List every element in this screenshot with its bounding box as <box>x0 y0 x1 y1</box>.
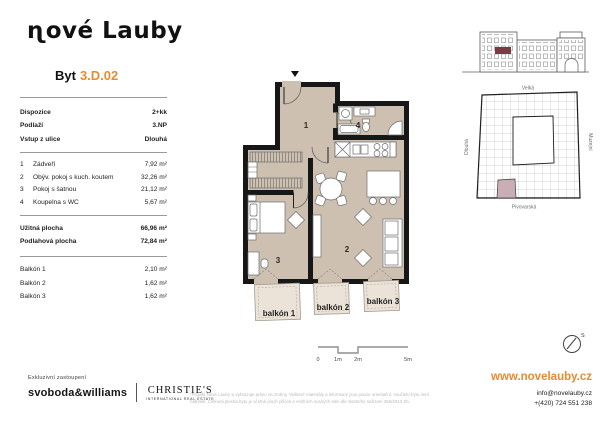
total-row: Podlahová plocha 72,84 m² <box>20 235 167 248</box>
inner-courtyard <box>513 116 554 165</box>
disclaimer-text: *Projekt Nové Lauby si vyhrazuje právo n… <box>190 391 452 406</box>
detail-row-podlazi: Podlaží 3.NP <box>20 119 167 132</box>
site-plan: Velká Pivovarská Dlouhá Muzejní <box>462 85 595 215</box>
detail-label: Dispozice <box>20 106 51 119</box>
compass-north-label: S <box>581 333 585 339</box>
kitchen-island <box>367 171 400 197</box>
room-area: 5,67 m² <box>145 197 167 210</box>
kitchen-counter <box>335 142 396 157</box>
website-link[interactable]: www.novelauby.cz <box>418 371 592 383</box>
bathroom-counter <box>354 107 375 116</box>
disclaimer-line-1: *Projekt Nové Lauby si vyhrazuje právo n… <box>190 391 452 398</box>
detail-value: Dlouhá <box>145 133 167 146</box>
room-name: Obýv. pokoj s kuch. koutem <box>33 172 141 185</box>
balcony-label: Balkón 2 <box>20 277 46 290</box>
phone-number: +(420) 724 551 238 <box>418 399 592 409</box>
desk <box>248 252 259 275</box>
disclaimer-line-2: nábytek. Celková plocha bytu je včetně p… <box>190 398 452 405</box>
detail-label: Podlaží <box>20 119 43 132</box>
room-no: 3 <box>20 184 33 197</box>
scale-bar: 0 1m 2m 5m <box>316 347 412 362</box>
brand-logo: ɳové Lauby <box>27 18 183 44</box>
sofa <box>383 219 402 267</box>
detail-label: Vstup z ulice <box>20 133 60 146</box>
room-row: 3 Pokoj s šatnou 21,12 m² <box>20 184 167 197</box>
wall-cabinet <box>313 215 321 257</box>
total-row: Užitná plocha 66,96 m² <box>20 222 167 235</box>
entry-door-opening <box>282 81 301 89</box>
entrance-arrow-icon <box>291 71 299 77</box>
room-row: 1 Zádveří 7,92 m² <box>20 159 167 172</box>
room-label-2: 2 <box>345 245 350 254</box>
total-label: Podlahová plocha <box>20 235 76 248</box>
washing-machine <box>339 107 352 120</box>
svoboda-williams-logo: svoboda&williams <box>28 387 127 399</box>
contact-block: www.novelauby.cz info@novelauby.cz +(420… <box>418 371 592 409</box>
unit-title: Byt3.D.02 <box>55 68 118 83</box>
arched-entry <box>565 59 578 72</box>
balcony-area: 1,62 m² <box>145 290 167 303</box>
detail-row-dispozice: Dispozice 2+kk <box>20 106 167 119</box>
unit-label: Byt <box>55 68 76 83</box>
room-no: 1 <box>20 159 33 172</box>
room-no: 2 <box>20 172 33 185</box>
room-row: 2 Obýv. pokoj s kuch. koutem 32,26 m² <box>20 172 167 185</box>
room-area: 32,26 m² <box>141 172 167 185</box>
balcony-3 <box>363 280 399 311</box>
logo-divider <box>136 383 137 402</box>
balcony-area: 1,62 m² <box>145 277 167 290</box>
total-value: 66,96 m² <box>141 222 167 235</box>
scale-tick-0: 0 <box>316 357 319 362</box>
room-area: 7,92 m² <box>145 159 167 172</box>
room-label-3: 3 <box>276 256 281 265</box>
total-value: 72,84 m² <box>141 235 167 248</box>
floor-plan-sheet: ɳové Lauby Byt3.D.02 Dispozice 2+kk Podl… <box>0 0 600 422</box>
room-name: Zádveří <box>33 159 145 172</box>
unit-number: 3.D.02 <box>80 68 118 83</box>
divider <box>20 215 167 216</box>
pillow <box>250 219 257 231</box>
detail-value: 3.NP <box>152 119 167 132</box>
floor-plan-drawing: 1 2 3 4 balkón 1 balkón 2 balkón 3 0 1m … <box>224 68 436 362</box>
divider <box>20 97 167 98</box>
balcony-label: Balkón 1 <box>20 263 46 276</box>
info-panel: Dispozice 2+kk Podlaží 3.NP Vstup z ulic… <box>20 97 167 304</box>
room-row: 4 Koupelna s WC 5,67 m² <box>20 197 167 210</box>
balcony-3-label: balkón 3 <box>367 297 400 306</box>
street-top: Velká <box>522 86 534 92</box>
scale-tick-2m: 2m <box>354 357 362 362</box>
balcony-row: Balkón 3 1,62 m² <box>20 290 167 303</box>
building-elevation <box>458 12 593 80</box>
toilet <box>363 123 370 132</box>
pillow <box>250 204 257 216</box>
nightstand <box>248 195 256 201</box>
balcony-1-label: balkón 1 <box>263 309 296 318</box>
balcony-label: Balkón 3 <box>20 290 46 303</box>
email-link[interactable]: info@novelauby.cz <box>418 389 592 399</box>
balcony-2-label: balkón 2 <box>317 303 350 312</box>
fridge <box>390 142 396 157</box>
dining-table <box>320 178 342 200</box>
room-name: Pokoj s šatnou <box>33 184 141 197</box>
wardrobe-shelving <box>250 152 302 162</box>
street-right: Muzejní <box>587 133 593 151</box>
scale-tick-5m: 5m <box>404 357 412 362</box>
highlighted-unit <box>497 179 516 198</box>
balcony-list: Balkón 1 2,10 m² Balkón 2 1,62 m² Balkón… <box>20 263 167 303</box>
desk-chair <box>261 259 268 268</box>
room-area: 21,12 m² <box>141 184 167 197</box>
room-no: 4 <box>20 197 33 210</box>
nightstand <box>248 234 256 240</box>
street-bottom: Pivovarská <box>512 205 537 211</box>
totals-table: Užitná plocha 66,96 m² Podlahová plocha … <box>20 222 167 249</box>
room-name: Koupelna s WC <box>33 197 145 210</box>
divider <box>20 152 167 153</box>
room-list: 1 Zádveří 7,92 m² 2 Obýv. pokoj s kuch. … <box>20 159 167 209</box>
room-label-1: 1 <box>304 121 309 130</box>
divider <box>20 256 167 257</box>
total-label: Užitná plocha <box>20 222 63 235</box>
highlighted-unit-windows <box>495 47 511 54</box>
wardrobe-shelving <box>250 178 302 188</box>
balcony-row: Balkón 2 1,62 m² <box>20 277 167 290</box>
street-left: Dlouhá <box>464 139 470 155</box>
scale-tick-1m: 1m <box>334 357 342 362</box>
balcony-area: 2,10 m² <box>145 263 167 276</box>
exclusive-representation-label: Exkluzivní zastoupení <box>28 375 86 381</box>
compass-icon: S <box>552 326 596 370</box>
detail-row-vstup: Vstup z ulice Dlouhá <box>20 133 167 146</box>
balcony-row: Balkón 1 2,10 m² <box>20 263 167 276</box>
shelf-unit <box>248 162 257 178</box>
details-table: Dispozice 2+kk Podlaží 3.NP Vstup z ulic… <box>20 106 167 146</box>
detail-value: 2+kk <box>152 106 167 119</box>
room-label-4: 4 <box>356 121 361 130</box>
agency-logos: svoboda&williams CHRISTIE'S INTERNATIONA… <box>28 383 214 402</box>
bar-stools <box>370 198 397 205</box>
